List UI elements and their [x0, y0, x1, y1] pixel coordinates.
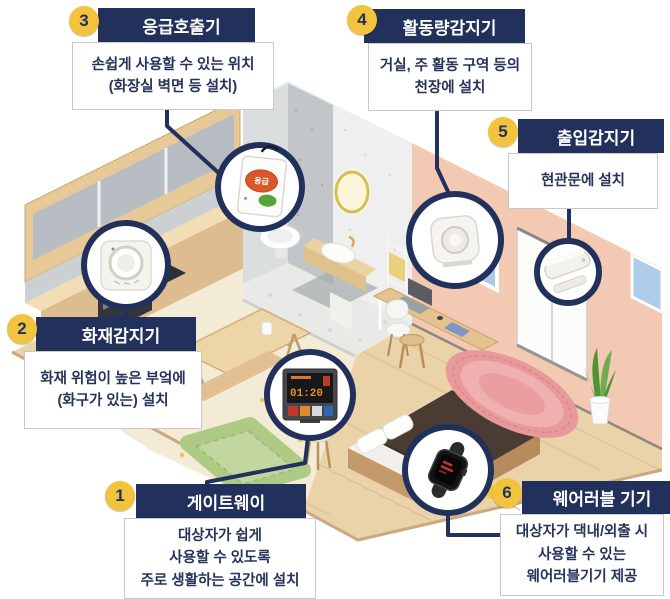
callout-line: (화장실 벽면 등 설치)	[109, 76, 237, 98]
badge-4: 4	[347, 5, 377, 35]
badge-1: 1	[105, 481, 135, 511]
fire-detector-icon	[101, 241, 151, 290]
callout-line: 사용할 수 있는	[538, 544, 626, 566]
emergency-button-label: 응급	[254, 175, 270, 187]
callout-body: 화재 위험이 높은 부엌에 (화구가 있는) 설치	[24, 351, 202, 429]
callout-line: 손쉽게 사용할 수 있는 위치	[92, 54, 255, 76]
infographic-smart-care-home: 응급	[0, 0, 670, 599]
marker-gateway: 01:20	[267, 352, 353, 438]
callout-body: 대상자가 쉽게 사용할 수 있도록 주로 생활하는 공간에 설치	[124, 518, 316, 599]
marker-activity-sensor	[409, 194, 501, 286]
callout-line: 대상자가 댁내/외출 시	[516, 521, 648, 543]
badge-6: 6	[492, 478, 522, 508]
marker-emergency-call: 응급	[218, 144, 302, 229]
callout-line: 사용할 수 있도록	[169, 547, 270, 569]
callout-line: (화구가 있는) 설치	[57, 390, 168, 412]
mouse	[437, 316, 443, 320]
badge-5: 5	[488, 117, 518, 147]
marker-fire-detector	[84, 223, 168, 307]
badge-2: 2	[7, 314, 37, 344]
callout-body: 손쉽게 사용할 수 있는 위치 (화장실 벽면 등 설치)	[72, 42, 274, 110]
kettle	[262, 322, 272, 335]
callout-title-gateway: 게이트웨이	[136, 484, 306, 518]
callout-line: 화재 위험이 높은 부엌에	[40, 368, 186, 390]
callout-line: 천장에 설치	[415, 77, 486, 99]
callout-title-fire-detector: 화재감지기	[36, 317, 196, 351]
gateway-device-icon: 01:20	[283, 369, 337, 423]
callout-title-wearable: 웨어러블 기기	[522, 481, 670, 514]
marker-wearable	[405, 427, 491, 513]
toilet-seat	[267, 229, 293, 243]
callout-body: 거실, 주 활동 구역 등의 천장에 설치	[368, 43, 532, 111]
callout-line: 웨어러블기기 제공	[527, 566, 638, 588]
round-mirror	[336, 172, 368, 212]
badge-3: 3	[69, 6, 99, 36]
callout-line: 주로 생활하는 공간에 설치	[141, 570, 300, 592]
marker-entry-sensor	[537, 241, 599, 303]
callout-line: 대상자가 쉽게	[178, 525, 262, 547]
callout-title-emergency-call: 응급호출기	[98, 8, 255, 42]
callout-title-activity-sensor: 활동량감지기	[364, 9, 525, 43]
callout-title-entry-sensor: 출입감지기	[518, 119, 664, 153]
callout-body: 현관문에 설치	[508, 153, 658, 209]
callout-line: 거실, 주 활동 구역 등의	[380, 55, 520, 77]
callout-line: 현관문에 설치	[541, 170, 625, 192]
gateway-screen-time: 01:20	[290, 388, 323, 400]
callout-body: 대상자가 댁내/외출 시 사용할 수 있는 웨어러블기기 제공	[500, 514, 664, 596]
